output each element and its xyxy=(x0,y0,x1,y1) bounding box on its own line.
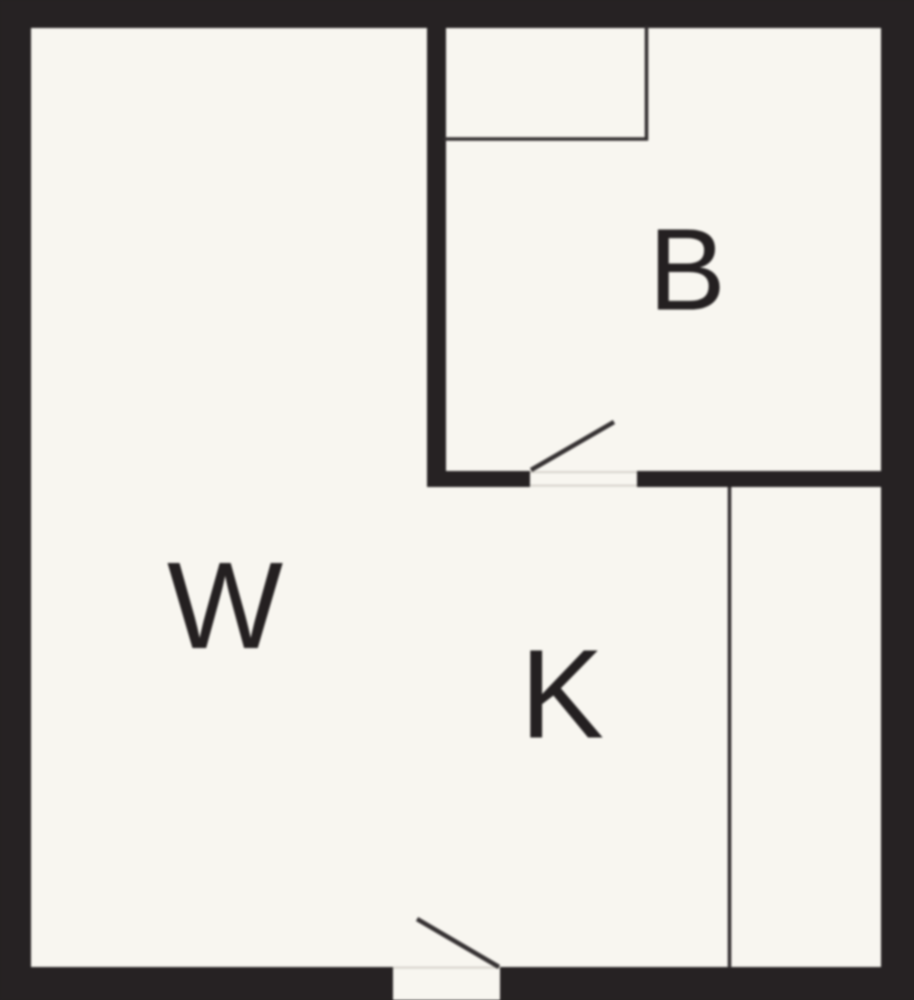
svg-text:B: B xyxy=(648,205,725,335)
svg-text:K: K xyxy=(520,624,604,765)
svg-text:W: W xyxy=(167,538,283,675)
